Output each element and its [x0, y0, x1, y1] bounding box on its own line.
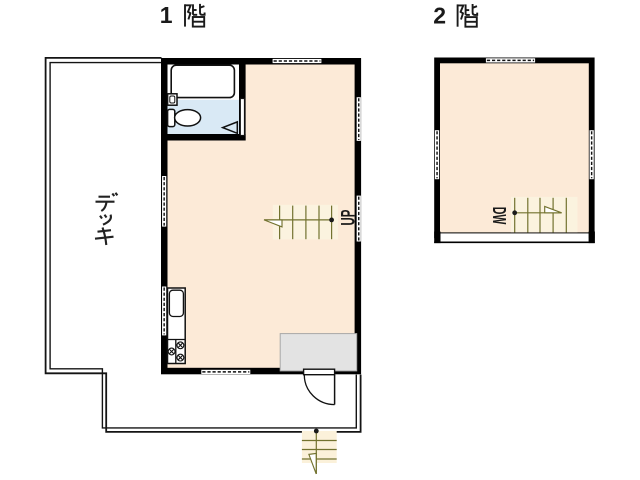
svg-text:2: 2: [433, 2, 446, 28]
svg-text:UP: UP: [337, 209, 359, 225]
svg-text:DW: DW: [488, 207, 509, 225]
svg-text:1: 1: [160, 2, 173, 28]
